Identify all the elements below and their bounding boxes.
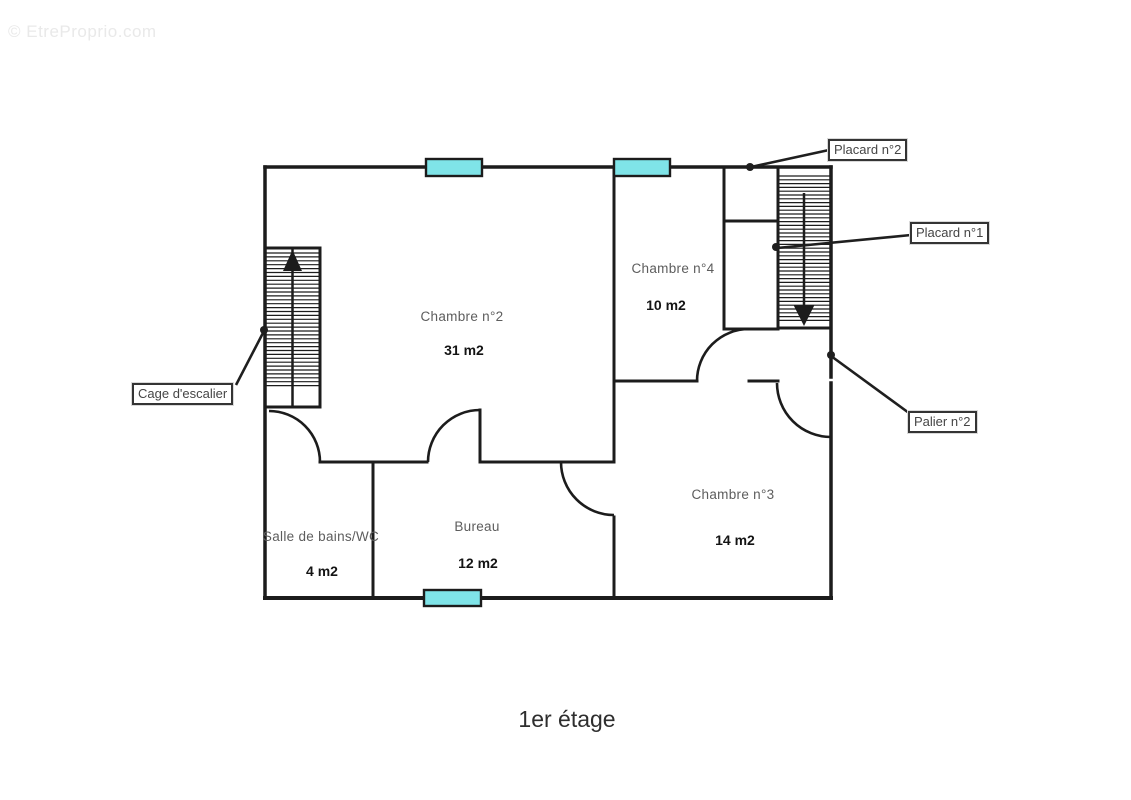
room-area-chambre2: 31 m2 <box>444 342 484 358</box>
room-label-salle-de-bains: Salle de bains/WC <box>263 529 379 544</box>
room-area-chambre3: 14 m2 <box>715 532 755 548</box>
room-label-chambre4: Chambre n°4 <box>632 261 715 276</box>
leader-line-palier-2 <box>831 356 909 413</box>
leader-dot-placard-1 <box>772 243 780 251</box>
door-arc-salle-de-bains <box>269 411 320 462</box>
room-area-salle-de-bains: 4 m2 <box>306 563 338 579</box>
leader-line-placard-2 <box>751 150 829 167</box>
callout-palier-2: Palier n°2 <box>908 411 977 433</box>
room-label-chambre2: Chambre n°2 <box>421 309 504 324</box>
window-top-right <box>614 159 670 176</box>
callout-cage-escalier: Cage d'escalier <box>132 383 233 405</box>
leader-dot-palier-2 <box>827 351 835 359</box>
watermark: © EtreProprio.com <box>8 22 157 42</box>
room-label-chambre3: Chambre n°3 <box>692 487 775 502</box>
callout-placard-1: Placard n°1 <box>910 222 989 244</box>
window-top-left <box>426 159 482 176</box>
leader-dot-placard-2 <box>746 163 754 171</box>
room-area-bureau: 12 m2 <box>458 555 498 571</box>
floor-title: 1er étage <box>518 706 615 733</box>
door-arc-chambre4 <box>697 329 749 381</box>
leader-line-cage-escalier <box>236 331 264 385</box>
callout-placard-2: Placard n°2 <box>828 139 907 161</box>
door-arc-palier-ch3 <box>777 383 831 437</box>
door-arc-bureau-ch3 <box>561 462 614 515</box>
door-arc-bureau-ch2 <box>428 410 480 462</box>
room-area-chambre4: 10 m2 <box>646 297 686 313</box>
staircase-down-arrow-head <box>794 305 815 326</box>
window-bottom <box>424 590 481 606</box>
room-label-bureau: Bureau <box>454 519 499 534</box>
floor-plan-page: © EtreProprio.com Chambre n°2 31 m2 Cham… <box>0 0 1131 800</box>
leader-dot-cage-escalier <box>260 326 268 334</box>
